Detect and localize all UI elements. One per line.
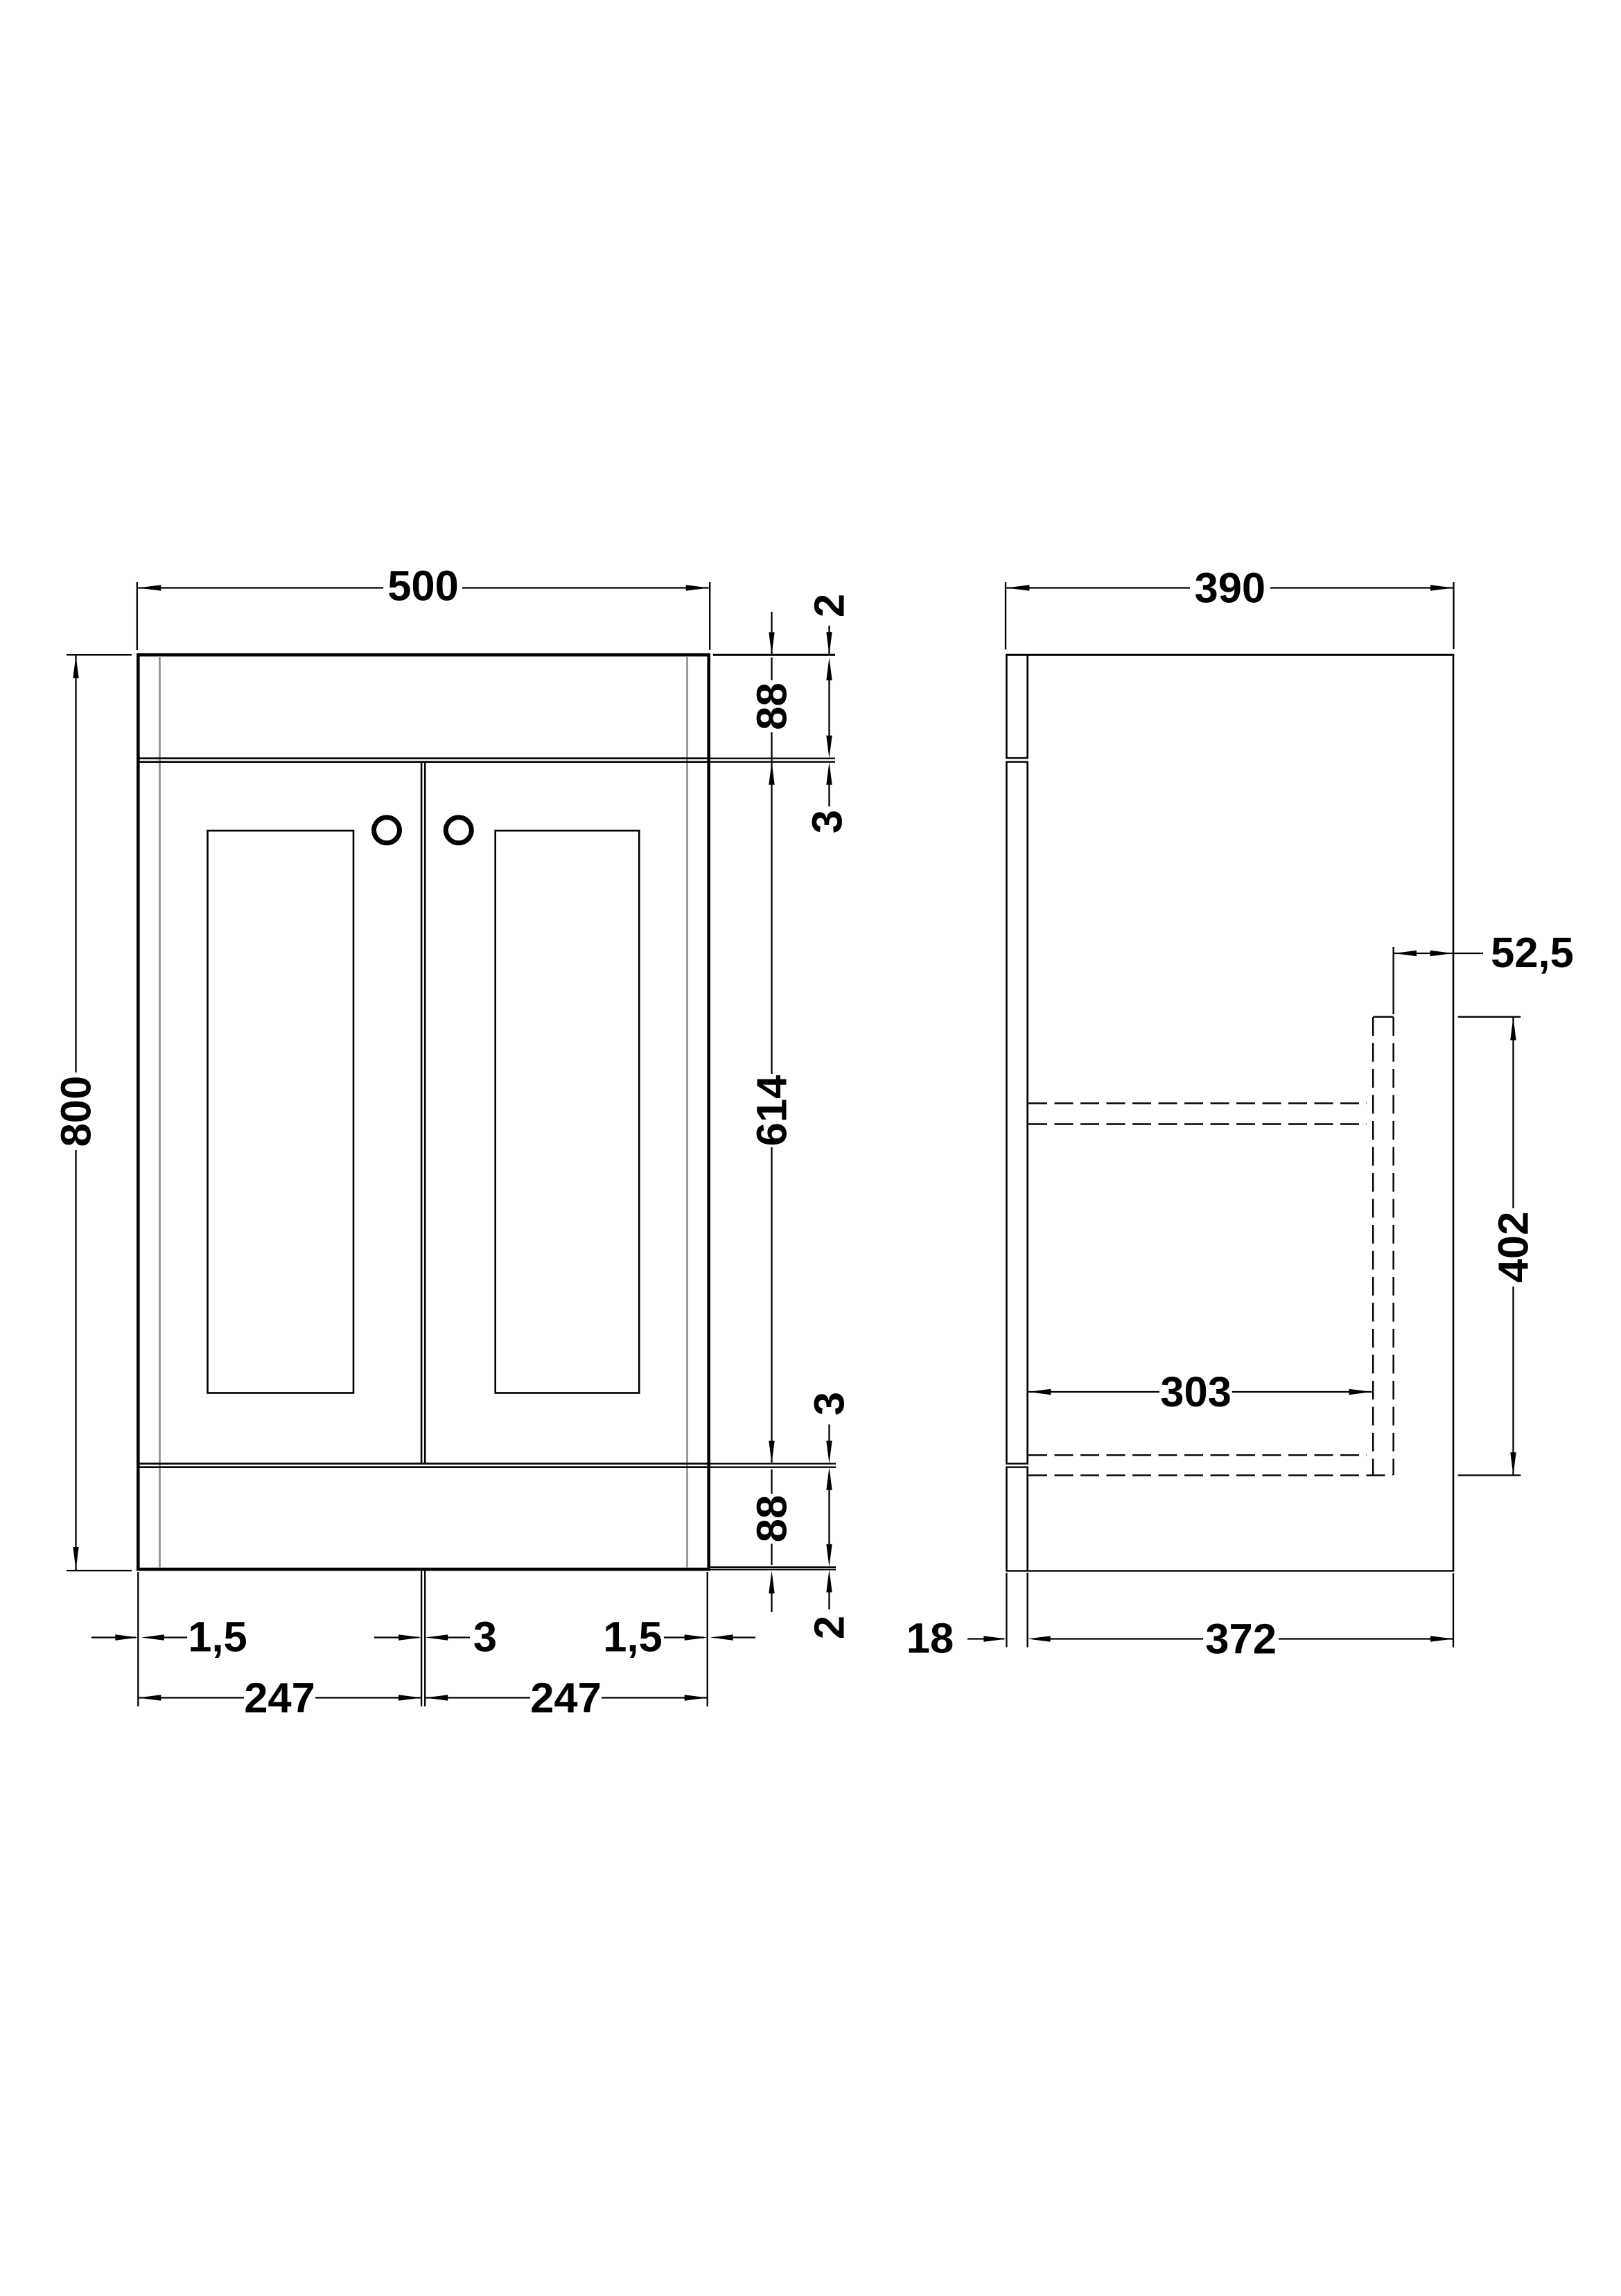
svg-text:3: 3 — [806, 1392, 854, 1415]
svg-text:2: 2 — [806, 594, 854, 617]
svg-text:88: 88 — [748, 1495, 796, 1542]
svg-text:1,5: 1,5 — [188, 1614, 247, 1661]
svg-text:18: 18 — [906, 1615, 954, 1663]
svg-text:1,5: 1,5 — [603, 1614, 663, 1661]
svg-text:800: 800 — [53, 1076, 100, 1147]
svg-text:88: 88 — [748, 682, 796, 730]
svg-text:52,5: 52,5 — [1491, 929, 1574, 977]
svg-text:3: 3 — [804, 810, 852, 833]
svg-text:303: 303 — [1160, 1368, 1232, 1416]
svg-text:372: 372 — [1205, 1616, 1277, 1663]
svg-text:2: 2 — [806, 1616, 854, 1639]
svg-text:402: 402 — [1490, 1212, 1538, 1283]
svg-text:247: 247 — [244, 1675, 315, 1722]
svg-text:614: 614 — [748, 1075, 796, 1147]
svg-text:500: 500 — [387, 563, 459, 610]
svg-text:3: 3 — [473, 1614, 497, 1661]
svg-text:390: 390 — [1194, 565, 1265, 612]
svg-text:247: 247 — [530, 1675, 602, 1722]
